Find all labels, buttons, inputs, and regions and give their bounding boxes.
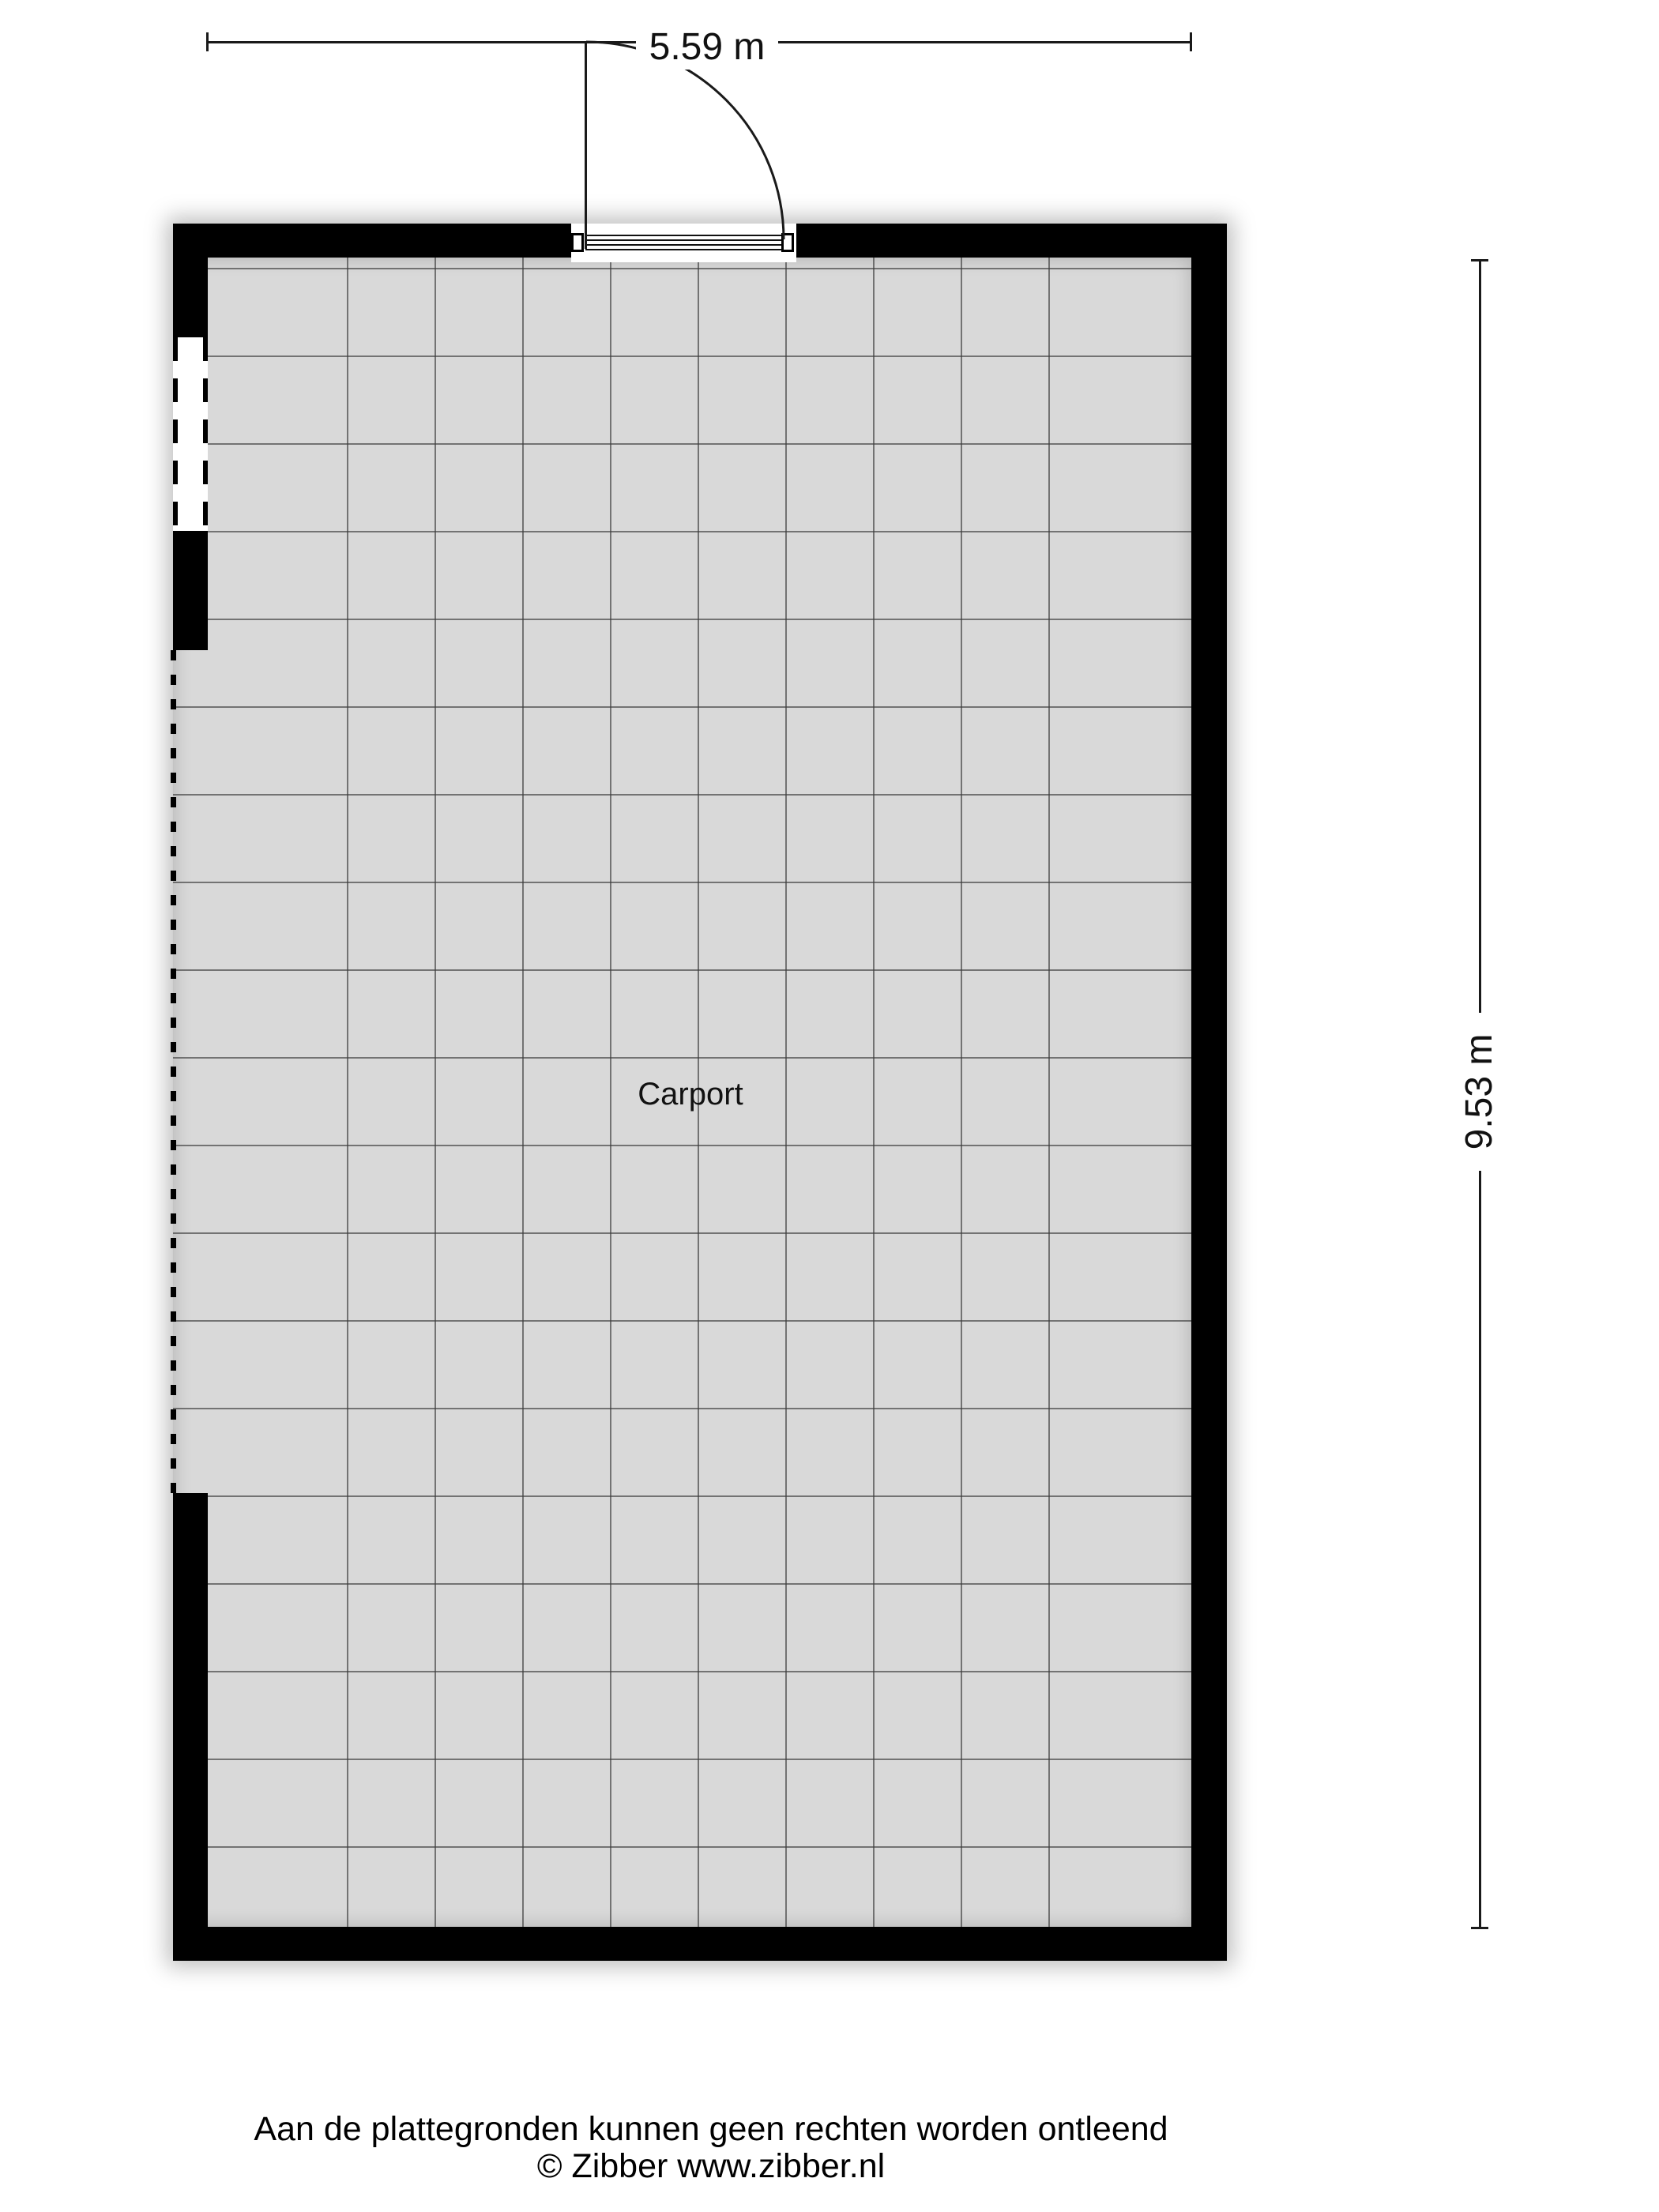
- footer-copyright: © Zibber www.zibber.nl: [197, 2148, 1224, 2185]
- floor-tile-grid-horizontal: [173, 268, 1191, 1848]
- door-jamb-left: [571, 233, 584, 252]
- footer: Aan de plattegronden kunnen geen rechten…: [197, 2111, 1224, 2185]
- room-label: Carport: [611, 1072, 769, 1116]
- dimension-tick-top: [1471, 259, 1488, 261]
- dimension-label-width: 5.59 m: [636, 25, 778, 70]
- footer-disclaimer: Aan de plattegronden kunnen geen rechten…: [197, 2111, 1224, 2148]
- wall-right: [1191, 224, 1227, 1961]
- wall-bottom: [173, 1927, 1227, 1961]
- door-leaf: [585, 42, 587, 249]
- wall-left-lower: [173, 1493, 208, 1961]
- dimension-label-height: 9.53 m: [1458, 1013, 1502, 1171]
- dimension-tick-left: [206, 32, 209, 51]
- dimension-tick-right: [1190, 32, 1192, 51]
- door-threshold: [585, 235, 784, 251]
- window-dashed-edge-outer: [173, 337, 178, 531]
- open-side-dotted-line: [171, 650, 176, 1493]
- floorplan-page: 5.59 m 9.53 m Carport Aan de plattegrond…: [0, 0, 1659, 2212]
- window-dashed-edge-inner: [203, 337, 208, 531]
- dimension-tick-bottom: [1471, 1927, 1488, 1929]
- door-jamb-right: [781, 233, 794, 252]
